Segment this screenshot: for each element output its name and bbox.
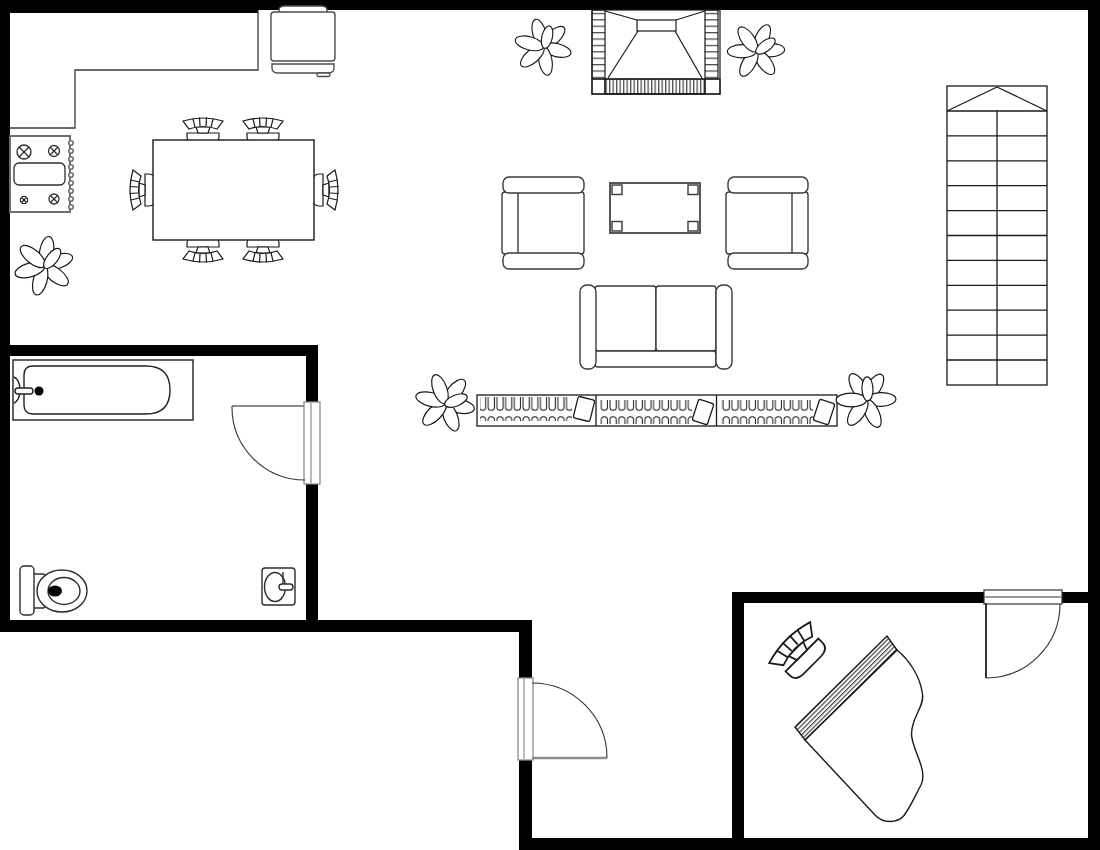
wall-left: [0, 0, 10, 632]
wall-piano-room-left: [732, 592, 744, 850]
wall-bathroom-top: [0, 345, 318, 356]
wall-bathroom-right-lower: [306, 482, 318, 632]
wall-bathroom-right-upper: [306, 345, 318, 404]
bathtub-faucet-knob: [35, 387, 44, 396]
wall-piano-room-top-b: [1060, 592, 1088, 603]
sofa: [580, 285, 732, 369]
toilet-seat-mark: [48, 586, 62, 597]
books: [600, 400, 692, 424]
wall-bathroom-bottom: [0, 620, 531, 632]
coffee-table: [610, 183, 700, 233]
armchair-right: [726, 177, 808, 269]
dining-table: [153, 140, 314, 240]
wall-entry-lower: [519, 759, 532, 850]
bathroom-sink: [262, 568, 295, 605]
bookshelf: [477, 395, 837, 426]
refrigerator: [271, 6, 335, 77]
wall-piano-room-top-a: [732, 592, 985, 603]
armchair-left: [502, 177, 584, 269]
wall-entry-upper: [519, 620, 532, 679]
stove-knobs: [69, 141, 73, 209]
bathtub-faucet: [15, 388, 33, 394]
floor-plan-canvas: [0, 0, 1100, 850]
wall-bottom: [519, 838, 1100, 850]
books: [480, 397, 572, 421]
toilet: [20, 566, 87, 615]
fireplace: [592, 10, 720, 94]
books: [721, 400, 813, 424]
wall-top-thick: [0, 0, 258, 13]
stairs: [947, 86, 1047, 385]
bathtub: [13, 360, 193, 420]
floor-plan-page: [0, 0, 1100, 850]
wall-right: [1088, 0, 1100, 850]
stove: [10, 136, 73, 212]
sink-faucet: [279, 584, 293, 590]
